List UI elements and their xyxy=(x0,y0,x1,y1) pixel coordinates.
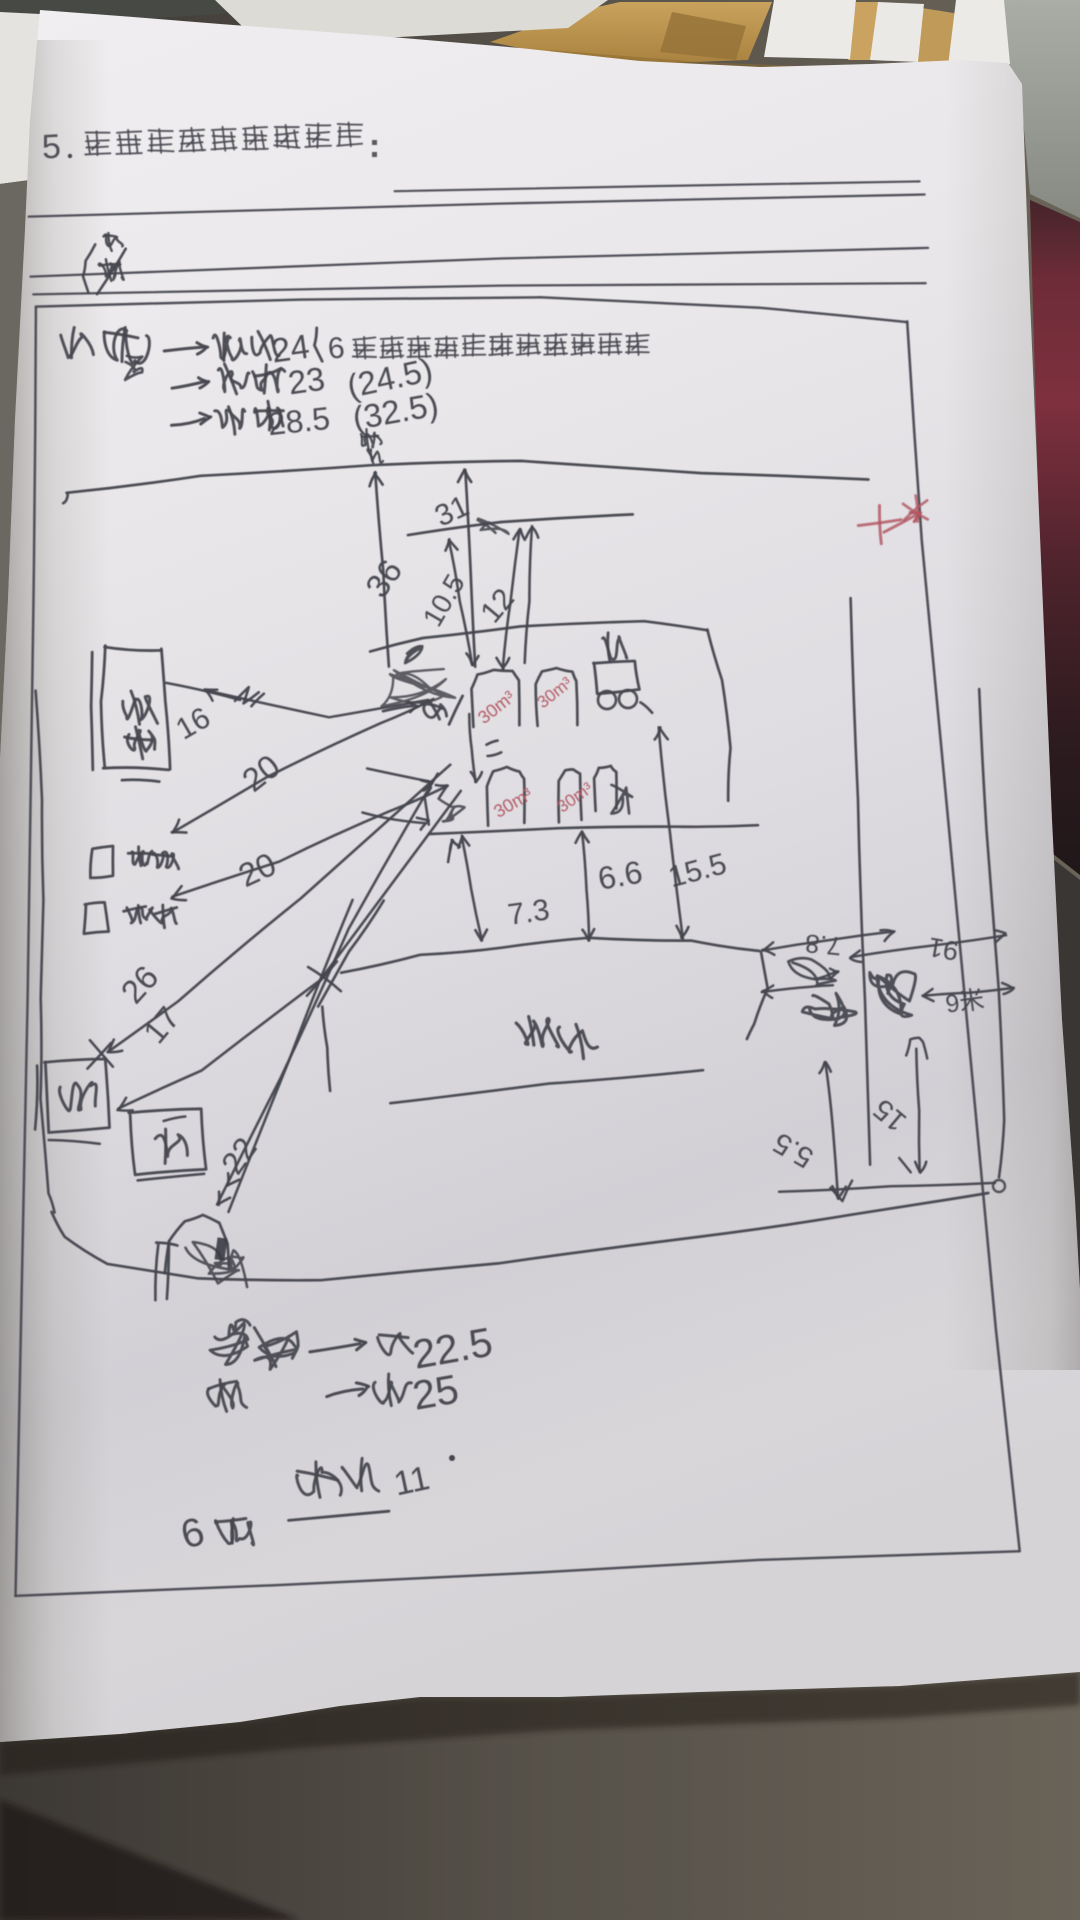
svg-text:91: 91 xyxy=(926,931,961,966)
svg-text:7.3: 7.3 xyxy=(506,893,552,931)
svg-text:9米: 9米 xyxy=(944,986,986,1019)
svg-text:6.6: 6.6 xyxy=(595,854,645,897)
svg-text:7.8: 7.8 xyxy=(804,928,843,961)
svg-text:23: 23 xyxy=(286,360,328,402)
svg-text:25: 25 xyxy=(409,1366,462,1419)
svg-text:28.5: 28.5 xyxy=(266,400,332,442)
svg-text:5: 5 xyxy=(41,128,62,167)
svg-text:6: 6 xyxy=(326,331,346,365)
